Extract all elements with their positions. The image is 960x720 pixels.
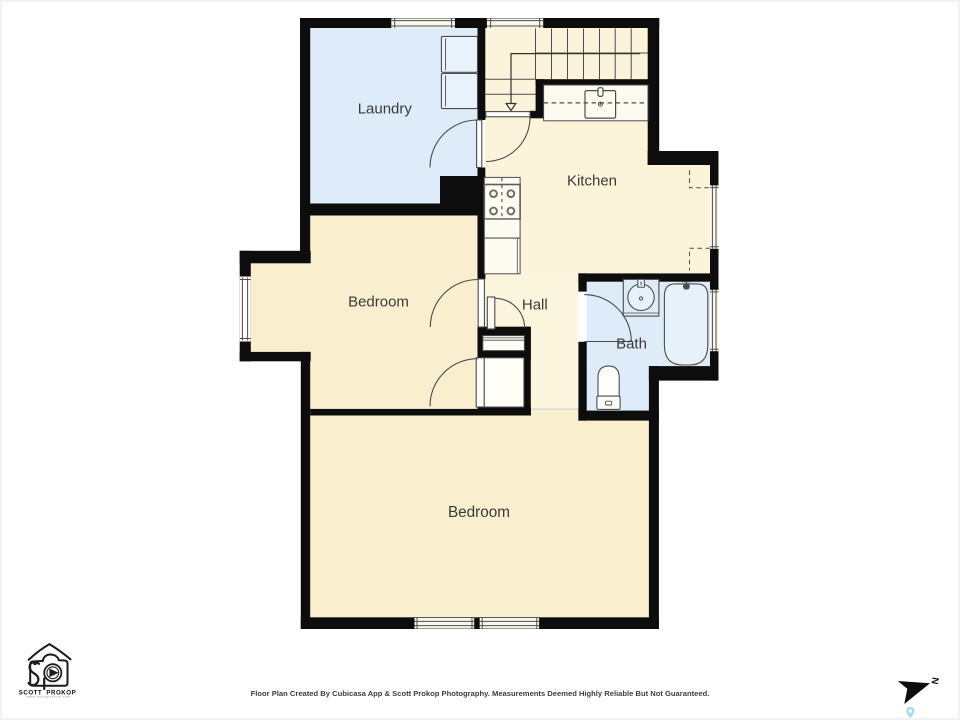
svg-text:www.scottprokop.com: www.scottprokop.com	[27, 694, 71, 698]
svg-text:Bedroom: Bedroom	[348, 294, 409, 311]
svg-text:Hall: Hall	[522, 296, 548, 313]
svg-text:Kitchen: Kitchen	[567, 173, 617, 190]
svg-text:Bedroom: Bedroom	[448, 504, 510, 521]
svg-text:Floor Plan Created By Cubicasa: Floor Plan Created By Cubicasa App & Sco…	[251, 689, 710, 698]
svg-text:Bath: Bath	[616, 335, 647, 352]
svg-text:Laundry: Laundry	[358, 101, 413, 118]
